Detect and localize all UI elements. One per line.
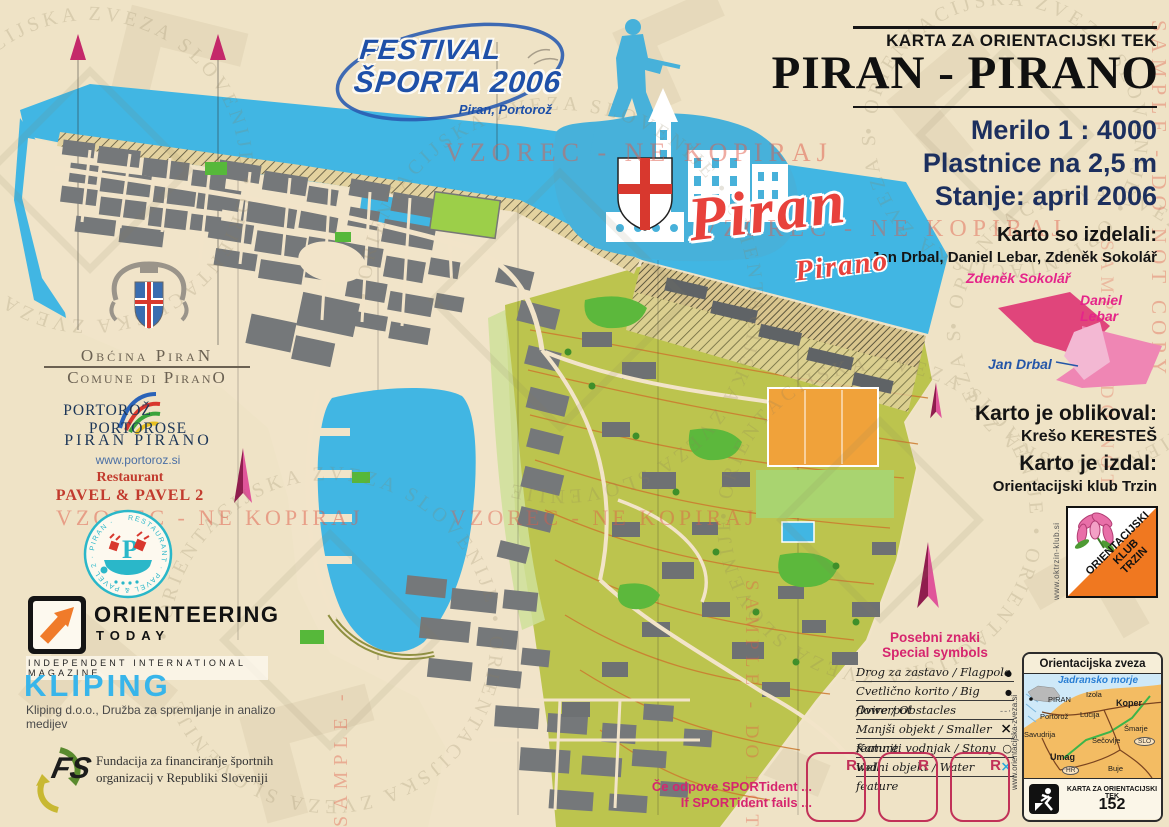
festival-sporta-logo: FESTIVAL ŠPORTA 2006 Piran, Portorož (332, 20, 570, 126)
foundation-line2: organizacij v Republiki Sloveniji (96, 769, 286, 786)
festival-line2: ŠPORTA 2006 (352, 66, 563, 100)
restaurant-emblem: RESTAURANT · PAVEL & PAVEL 2 · PIRAN · P (82, 508, 174, 600)
municipality-crest (104, 260, 194, 348)
foundation-text: Fundacija za financiranje športnih organ… (96, 752, 286, 786)
town-umag: Umag (1050, 752, 1075, 762)
ozs-region-map: Jadransko morje PIRAN Izola Koper Portor… (1024, 674, 1161, 778)
scale-block: Merilo 1 : 4000 Plastnice na 2,5 m Stanj… (923, 114, 1157, 213)
mapper-areas-map: Zdeněk Sokolář Daniel Lebar Jan Drbal (958, 270, 1163, 388)
town-izola: Izola (1086, 690, 1102, 699)
orienteering-today-sub: TODAY (96, 628, 170, 643)
surveyors-names: Jan Drbal, Daniel Lebar, Zdeněk Sokolář (871, 249, 1157, 266)
legend-row: Cvetlično korito / Big flowerpot (856, 682, 1014, 701)
legend-label: Drog za zastavo / Flagpole (856, 665, 1011, 679)
ozs-website[interactable]: www.orientacijska-zveza.si (1010, 660, 1019, 790)
sportident-note: Če odpove SPORTident ... If SPORTident f… (600, 779, 812, 811)
portoroz-website[interactable]: www.portoroz.si (18, 453, 258, 467)
orienteering-runner-icon (1029, 784, 1059, 814)
town-lucija: Lucija (1080, 710, 1100, 719)
code-slo: SLO (1134, 737, 1155, 746)
foundation-line1: Fundacija za financiranje športnih (96, 752, 286, 769)
reserve-punch-box: R (878, 752, 938, 822)
restaurant-name: PAVEL & PAVEL 2 (48, 487, 212, 505)
town-portoroz: Portorož (1040, 712, 1068, 721)
orienteering-today-name: ORIENTEERING (94, 602, 279, 628)
surveyors-label: Karto so izdelali: (997, 224, 1157, 247)
sportident-note-sl: Če odpove SPORTident ... (600, 779, 812, 795)
festival-subtitle: Piran, Portorož (459, 102, 552, 117)
mapper-area-lebar: Daniel Lebar (1080, 292, 1163, 324)
town-smarje: Šmarje (1124, 724, 1148, 733)
reserve-punch-box: R (950, 752, 1010, 822)
reserve-punch-box: R (806, 752, 866, 822)
legend-row: Drog za zastavo / Flagpole (856, 663, 1014, 682)
town-secovlje: Sečovlje (1092, 736, 1120, 745)
orienteering-today-icon (28, 596, 86, 654)
town-buje: Buje (1108, 764, 1123, 773)
town-piran: PIRAN (1048, 695, 1071, 704)
designer-label: Karto je oblikoval: (975, 402, 1157, 426)
map-sheet: • ORIENTACIJSKA ZVEZA SLOVENIJE • ORIENT… (0, 0, 1169, 827)
ozs-sea-label: Jadransko morje (1058, 675, 1138, 686)
kliping-tagline: Kliping d.o.o., Družba za spremljanje in… (26, 703, 306, 731)
reserve-label: R (990, 757, 1001, 774)
town-koper: Koper (1116, 698, 1142, 708)
svg-text:P: P (122, 535, 138, 564)
legend-row: Ovire / Obstacles (856, 701, 1014, 720)
piran-coat-of-arms (618, 158, 672, 230)
club-website[interactable]: www.oktrzin-klub.si (1052, 508, 1061, 600)
municipality-name-sl: Obćina PiraN (40, 346, 254, 366)
ozs-box-title: Orientacijska zveza Slovenije (1024, 654, 1161, 674)
mapper-area-sokolar: Zdeněk Sokolář (966, 270, 1070, 286)
north-arrowheads (70, 34, 226, 60)
publisher-name: Orientacijski klub Trzin (993, 478, 1157, 495)
restaurant-label: Restaurant (60, 470, 200, 486)
ozs-box-footer: KARTA ZA ORIENTACIJSKI TEK 152 (1024, 778, 1161, 819)
legend-title-en: Special symbols (856, 645, 1014, 660)
legend-title-sl: Posebni znaki (856, 630, 1014, 645)
legend-label: Ovire / Obstacles (856, 703, 956, 717)
portoroz-name-sl: PORTOROŽ (63, 402, 152, 419)
sportident-note-en: If SPORTident fails ... (600, 795, 812, 811)
ozs-region-box: Orientacijska zveza Slovenije Jadransko … (1022, 652, 1163, 822)
town-savudrija: Savudrija (1024, 730, 1055, 739)
foundation-abbr: FS (48, 752, 94, 786)
contour-interval: Plastnice na 2,5 m (923, 147, 1157, 180)
mapper-area-drbal: Jan Drbal (988, 356, 1052, 372)
legend-row: Manjši objekt / Smaller feature (856, 720, 1014, 739)
publisher-label: Karto je izdal: (1019, 452, 1157, 476)
kliping-logo: KLIPING (24, 668, 171, 704)
designer-name: Krešo KERESTEŠ (1021, 428, 1157, 446)
reserve-label: R (846, 757, 857, 774)
map-number: 152 (1064, 796, 1160, 814)
map-scale: Merilo 1 : 4000 (923, 114, 1157, 147)
reserve-label: R (918, 757, 929, 774)
map-status: Stanje: april 2006 (923, 180, 1157, 213)
portoroz-line2: PIRAN PIRANO (18, 432, 258, 450)
page-title: PIRAN - PIRANO (772, 46, 1159, 100)
title-rule-bottom (853, 106, 1157, 108)
festival-line1: FESTIVAL (358, 34, 503, 66)
title-rule-top (853, 26, 1157, 29)
club-logo: ORIENTACIJSKI KLUB TRZIN (1066, 506, 1158, 598)
